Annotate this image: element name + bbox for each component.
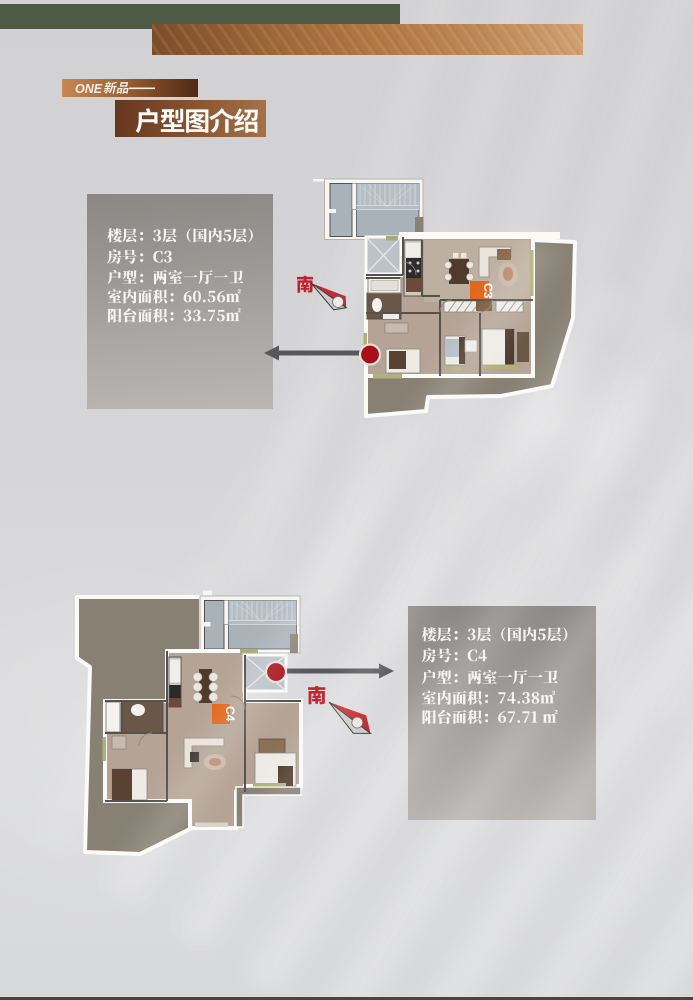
svg-text:C3: C3 [481, 283, 495, 299]
svg-text:C4: C4 [223, 706, 237, 722]
svg-text:ONE: ONE [75, 82, 103, 96]
